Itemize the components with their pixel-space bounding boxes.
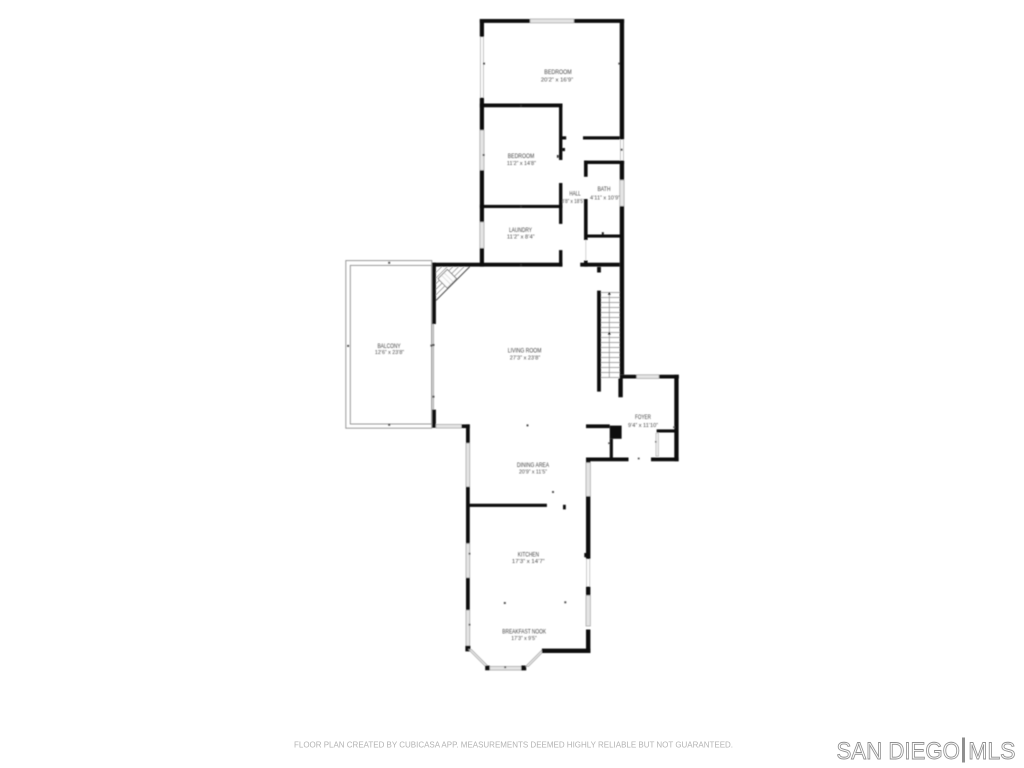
svg-text:LIVING ROOM: LIVING ROOM: [508, 348, 542, 355]
svg-text:MLS: MLS: [968, 738, 1015, 765]
svg-text:KITCHEN: KITCHEN: [518, 552, 539, 559]
svg-text:SAN DIEGO: SAN DIEGO: [837, 738, 960, 765]
svg-text:FLOOR PLAN CREATED BY CUBICASA: FLOOR PLAN CREATED BY CUBICASA APP. MEAS…: [294, 739, 733, 749]
svg-text:FOYER: FOYER: [635, 414, 651, 421]
svg-text:8’8” x 18’5”: 8’8” x 18’5”: [562, 199, 585, 205]
svg-text:11’2” x 8’4”: 11’2” x 8’4”: [507, 235, 535, 241]
svg-text:BEDROOM: BEDROOM: [508, 153, 535, 160]
svg-text:9’4” x 11’10”: 9’4” x 11’10”: [628, 423, 658, 429]
svg-text:4’11” x 10’9”: 4’11” x 10’9”: [590, 196, 620, 202]
svg-text:BREAKFAST NOOK: BREAKFAST NOOK: [502, 629, 546, 636]
svg-text:27’3” x 23’8”: 27’3” x 23’8”: [510, 356, 540, 362]
svg-text:BEDROOM: BEDROOM: [544, 69, 571, 76]
svg-text:11’2” x 14’8”: 11’2” x 14’8”: [507, 161, 536, 167]
svg-text:BATH: BATH: [597, 186, 610, 193]
svg-text:LAUNDRY: LAUNDRY: [509, 227, 532, 234]
svg-text:17’3” x 9’5”: 17’3” x 9’5”: [511, 636, 537, 642]
svg-text:DINING AREA: DINING AREA: [517, 462, 550, 469]
svg-text:17’3” x 14’7”: 17’3” x 14’7”: [512, 559, 545, 565]
svg-text:HALL: HALL: [569, 191, 581, 198]
svg-text:20’9” x 11’5”: 20’9” x 11’5”: [519, 470, 547, 476]
svg-text:12’6” x 23’8”: 12’6” x 23’8”: [375, 350, 404, 356]
svg-text:20’2” x 16’9”: 20’2” x 16’9”: [541, 77, 573, 83]
